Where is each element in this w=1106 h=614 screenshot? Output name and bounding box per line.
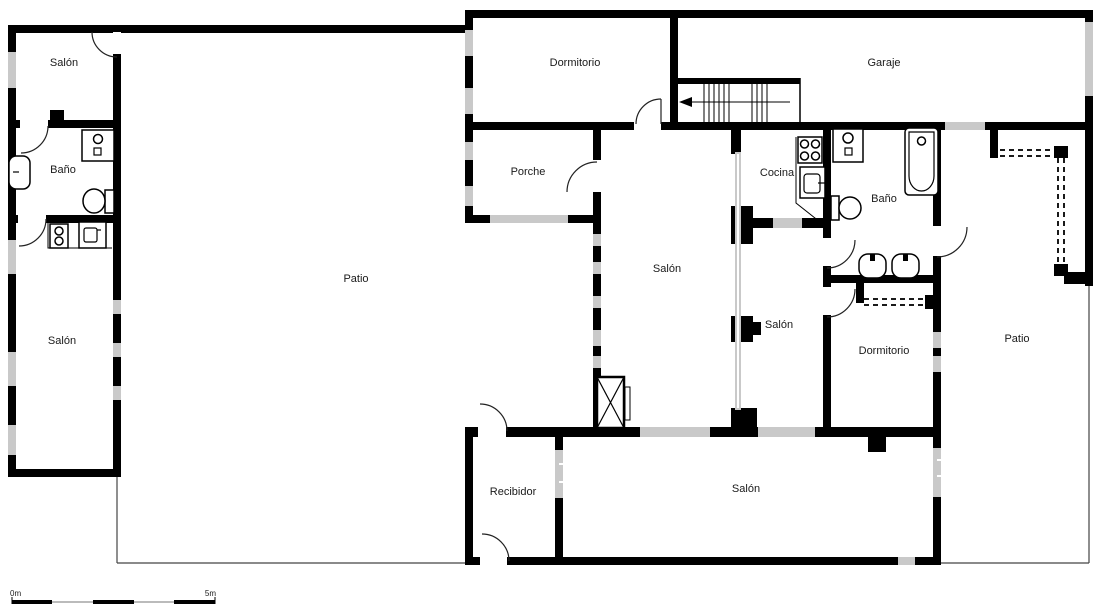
bathtub-icon — [905, 128, 938, 195]
scale-bar: 0m 5m — [10, 589, 216, 604]
closet-stub — [856, 283, 864, 303]
room-label-salon-center: Salón — [653, 263, 681, 275]
room-label-garaje: Garaje — [867, 57, 900, 69]
door-recibidor-top — [480, 404, 507, 431]
door-bano-tl — [21, 126, 48, 153]
door-gaps — [18, 32, 941, 565]
door-recibidor-bottom — [482, 534, 509, 561]
sink-icon — [82, 130, 114, 161]
stairs-icon — [679, 78, 800, 122]
sink-icon — [833, 129, 863, 162]
stove-icon — [50, 224, 68, 248]
stairs-arrow — [679, 97, 692, 107]
walls — [8, 10, 1093, 565]
pillar — [50, 110, 64, 128]
room-label-bano-right: Baño — [871, 193, 897, 205]
room-label-cocina: Cocina — [760, 167, 795, 179]
room-label-salon-mid: Salón — [765, 319, 793, 331]
room-label-bano-tl: Baño — [50, 164, 76, 176]
door-bano-patio — [937, 227, 967, 257]
room-label-dormitorio-right: Dormitorio — [859, 345, 910, 357]
room-label-recibidor: Recibidor — [490, 486, 537, 498]
windows — [8, 22, 1093, 565]
door-dormitorio-right — [827, 289, 855, 317]
room-label-dormitorio-top: Dormitorio — [550, 57, 601, 69]
stairs-top-wall — [676, 78, 800, 84]
floor-plan: Salón Baño Salón Patio Dormitorio Garaje… — [0, 0, 1106, 614]
sink-icon — [800, 167, 826, 198]
sink-icon — [79, 222, 106, 248]
pillar — [868, 437, 886, 452]
stove-icon — [798, 137, 822, 163]
basin-icon — [892, 254, 919, 278]
room-label-salon-bl: Salón — [48, 335, 76, 347]
toilet-icon — [831, 196, 861, 220]
scale-start-label: 0m — [10, 589, 21, 598]
room-label-patio-main: Patio — [343, 273, 368, 285]
basin-icon — [859, 254, 886, 278]
toilet-icon — [83, 189, 114, 213]
fireplace-icon — [597, 377, 630, 428]
room-label-salon-tl: Salón — [50, 57, 78, 69]
scale-end-label: 5m — [205, 589, 216, 598]
fixtures — [9, 128, 938, 428]
door-porche — [567, 162, 597, 192]
room-label-salon-bottom: Salón — [732, 483, 760, 495]
room-label-patio-right: Patio — [1004, 333, 1029, 345]
floor-plan-svg: Salón Baño Salón Patio Dormitorio Garaje… — [0, 0, 1106, 614]
door-salon-bl — [19, 219, 46, 246]
door-dormitorio-top — [636, 99, 661, 124]
door-bano-right — [827, 240, 855, 268]
room-label-porche: Porche — [511, 166, 546, 178]
toilet-icon — [9, 156, 30, 189]
